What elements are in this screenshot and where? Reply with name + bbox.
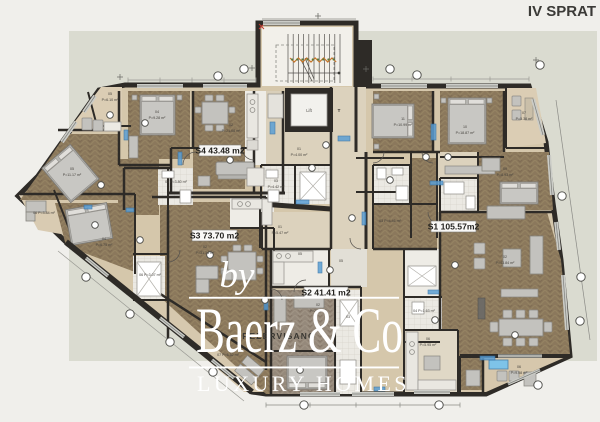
svg-text:02: 02 <box>503 255 507 259</box>
svg-text:05: 05 <box>339 259 343 263</box>
svg-text:P=6.75 m²: P=6.75 m² <box>96 243 113 247</box>
svg-text:04: 04 <box>102 237 106 241</box>
svg-text:P=5.47 m²: P=5.47 m² <box>272 231 289 235</box>
svg-text:S1 105.57m2: S1 105.57m2 <box>428 222 480 232</box>
svg-text:04: 04 <box>155 110 159 114</box>
svg-text:06: 06 <box>517 365 521 369</box>
svg-text:S3 73.70 m2: S3 73.70 m2 <box>190 231 239 241</box>
svg-text:IV SPRAT: IV SPRAT <box>528 3 596 20</box>
svg-text:P=31.34 m²: P=31.34 m² <box>196 251 215 255</box>
svg-text:P=5.95 m²: P=5.95 m² <box>420 343 437 347</box>
svg-text:05: 05 <box>298 252 302 256</box>
svg-text:06 P=3.07 m²: 06 P=3.07 m² <box>139 273 161 277</box>
svg-text:P=11.17 m²: P=11.17 m² <box>63 173 82 177</box>
svg-text:P=9.08 m²: P=9.08 m² <box>511 371 528 375</box>
svg-text:11: 11 <box>401 117 405 121</box>
svg-text:07: 07 <box>522 111 526 115</box>
svg-text:P=8.93 m²: P=8.93 m² <box>497 173 514 177</box>
svg-text:P=5.38 m²: P=5.38 m² <box>516 117 533 121</box>
svg-text:LUXURY HOMES: LUXURY HOMES <box>197 371 410 396</box>
svg-text:03: 03 <box>274 179 278 183</box>
svg-text:P=18.87 m²: P=18.87 m² <box>456 131 475 135</box>
svg-text:02: 02 <box>203 245 207 249</box>
svg-text:01: 01 <box>278 225 282 229</box>
svg-text:02: 02 <box>229 123 233 127</box>
svg-text:P=43.84 m²: P=43.84 m² <box>496 261 515 265</box>
svg-text:P=21.08 m²: P=21.08 m² <box>222 129 241 133</box>
svg-text:T: T <box>338 108 341 113</box>
svg-text:Lift: Lift <box>306 108 312 113</box>
svg-text:05: 05 <box>70 167 74 171</box>
svg-text:Baerz & Co: Baerz & Co <box>196 295 403 367</box>
svg-text:06: 06 <box>426 337 430 341</box>
svg-text:01: 01 <box>297 147 301 151</box>
svg-text:P=4.42 m²: P=4.42 m² <box>268 185 285 189</box>
svg-text:P=4.00 m²: P=4.00 m² <box>291 153 308 157</box>
svg-text:09: 09 <box>503 167 507 171</box>
svg-text:03 P=3.80 m²: 03 P=3.80 m² <box>165 180 187 184</box>
svg-text:P=6.10 m²: P=6.10 m² <box>102 98 119 102</box>
svg-text:06 P=3.84 m²: 06 P=3.84 m² <box>33 211 55 215</box>
svg-text:05: 05 <box>108 92 112 96</box>
svg-text:10: 10 <box>463 125 467 129</box>
svg-text:S4 43.48 m2: S4 43.48 m2 <box>195 146 244 156</box>
svg-text:P=9.28 m²: P=9.28 m² <box>149 116 166 120</box>
svg-text:P=10.99 m²: P=10.99 m² <box>394 123 413 127</box>
svg-text:04 P=1.63 m²: 04 P=1.63 m² <box>413 309 435 313</box>
svg-text:03 P=4.46 m²: 03 P=4.46 m² <box>379 219 401 223</box>
svg-text:by: by <box>220 255 256 296</box>
